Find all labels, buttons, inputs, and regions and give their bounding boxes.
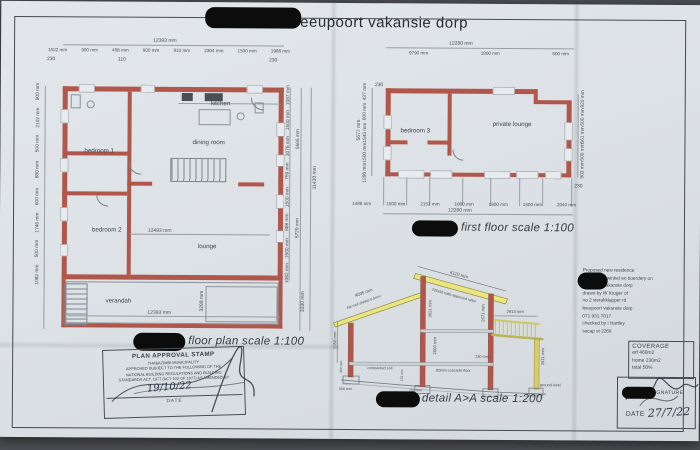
text-item: 1800 mm <box>455 202 474 207</box>
dim-left-height: 2958 mm <box>332 331 337 349</box>
scanned-plan-sheet: eeupoort vakansie dorp 12393 mm 1522 mm9… <box>0 1 700 441</box>
wall-segment <box>62 191 127 195</box>
room-label-private-lounge: private lounge <box>493 121 532 128</box>
wall-segment <box>447 94 451 156</box>
signature-scribble <box>612 352 700 413</box>
window <box>564 148 572 161</box>
section-caption: detail A>A scale 1:200 <box>422 392 543 405</box>
text-item: leeupoort vakansie dorp <box>582 304 674 312</box>
dim-verandah-side: 3330 mm <box>300 291 306 312</box>
wall-segment <box>238 182 264 186</box>
wall-segment <box>534 100 571 104</box>
room-label-bedroom2: bedroom 2 <box>92 226 122 233</box>
dim-deck-height: 2611 mm <box>540 348 545 366</box>
text-item: 759 mm <box>286 163 291 180</box>
text-item: 1500 mm <box>523 202 542 207</box>
window <box>383 146 391 160</box>
window <box>564 122 572 140</box>
text-item: 1500 mm <box>363 142 368 162</box>
wall-tick: 230 <box>375 82 383 88</box>
text-item: 1800 mm <box>481 51 500 56</box>
text-item: 500 mm <box>581 143 586 160</box>
window <box>247 85 263 93</box>
text-item: 600 mm <box>552 51 569 56</box>
text-item: 2304 mm <box>204 48 223 53</box>
redaction-blob <box>622 387 656 399</box>
dim-col-left: 900 mm2102 mm500 mm880 mm600 mm1746 mm50… <box>33 89 44 277</box>
dim-left-plinth: 300 mm <box>339 361 343 373</box>
redaction-blob <box>205 7 301 29</box>
deck-rail <box>493 320 539 324</box>
text-item: 5665 mm <box>296 129 301 149</box>
wall-tick: 110 <box>118 57 126 63</box>
text-item: 880 mm <box>36 161 41 178</box>
text-item: 500 mm <box>581 108 586 125</box>
text-item: sacap st 2268 <box>582 327 674 335</box>
dim-right-total: 11430 mm <box>312 166 318 189</box>
main-wall <box>488 294 494 390</box>
window <box>60 158 68 172</box>
text-item: 1087 mm <box>286 85 291 105</box>
dim-step: 230 mm <box>475 355 489 359</box>
text-item: 600 mm <box>363 103 368 120</box>
room-label-verandah: verandah <box>105 298 131 305</box>
text-item: 900 mm <box>143 48 160 53</box>
wall-segment <box>385 140 407 144</box>
first-floor-plan: 12280 mm 9790 mm1800 mm600 mm bedroom 3 … <box>1 1 700 5</box>
deck-post <box>534 339 539 389</box>
text-item: 1082 mm <box>35 265 40 285</box>
toilet-fixture <box>237 112 245 120</box>
text-item: 903 mm <box>581 161 586 178</box>
dim-room-height: 2600 mm <box>432 337 437 355</box>
text-item: 9790 mm <box>409 50 428 55</box>
room-label-bedroom1: bedroom 1 <box>84 147 114 154</box>
dim-total-top: 12280 mm <box>449 41 473 47</box>
window <box>430 170 452 178</box>
text-item: 900 mm <box>36 83 41 100</box>
dim-row-top: 9790 mm1800 mm600 mm <box>409 50 569 56</box>
dim-col-right-mid: 5665 mm5729 mm <box>293 95 304 273</box>
window <box>493 87 515 95</box>
redaction-blob <box>578 272 608 289</box>
text-item: 1522 mm <box>48 47 67 52</box>
text-item: 1543 mm <box>363 122 368 142</box>
text-item: 1900 mm <box>489 202 508 207</box>
signature-box: OWNER SIGNATURE DATE 27/7/22 <box>617 377 696 429</box>
text-item: 5729 mm <box>295 218 300 238</box>
dining-table <box>199 109 231 125</box>
first-floor-caption: first floor scale 1:100 <box>461 222 574 235</box>
text-item: 1500 mm <box>285 238 290 258</box>
text-item: 920 mm <box>581 90 586 107</box>
room-label-bedroom3: bedroom 3 <box>401 127 431 134</box>
text-item: 900 mm <box>81 47 98 52</box>
sheet-title: eeupoort vakansie dorp <box>300 14 468 32</box>
text-item: 2040 mm <box>557 202 576 207</box>
window <box>61 109 69 123</box>
wall-segment <box>278 281 282 329</box>
wall-segment <box>385 88 391 176</box>
text-item: 910 mm <box>174 48 191 53</box>
dim-col-right: 920 mm500 mm561 mm500 mm903 mm <box>578 96 588 172</box>
wall-tick: 230 <box>269 58 277 64</box>
redaction-blob <box>412 220 458 236</box>
staircase <box>170 158 226 182</box>
text-item: 1500 mm <box>286 187 291 207</box>
window <box>79 84 95 92</box>
text-item: 1500 mm <box>286 111 291 131</box>
text-item: 1500 mm <box>238 48 257 53</box>
dim-bottom-total: 12280 mm <box>448 208 472 214</box>
text-item: 600 mm <box>36 187 41 204</box>
basin-fixture <box>71 94 81 108</box>
text-item: 500 mm <box>35 240 40 257</box>
room-label-lounge: lounge <box>198 243 217 250</box>
window <box>60 207 68 221</box>
text-item: 1488 mm <box>352 201 371 206</box>
room-label-kitchen: kitchen <box>211 100 231 107</box>
window <box>60 244 68 256</box>
first-floor-slab <box>420 329 493 332</box>
text-item: 1082 mm <box>285 263 290 283</box>
window <box>384 115 392 129</box>
dim-wall-height: 3621 mm <box>427 300 432 318</box>
dim-total-top: 12393 mm <box>153 38 177 44</box>
text-item: 437 mm <box>363 83 368 100</box>
date-label: DATE <box>626 411 645 418</box>
text-item: 1500 mm <box>386 201 405 206</box>
text-item: 1296 mm <box>363 163 368 183</box>
window <box>141 85 155 93</box>
text-item: 888 mm <box>285 214 290 231</box>
dim-verandah-depth: 3298 mm <box>199 291 205 312</box>
room-label-dining: dining room <box>192 139 224 146</box>
text-item: 1988 mm <box>271 49 290 54</box>
dim-left-footing: 500 mm <box>339 387 352 391</box>
flat-roof-note: flat roof sheets 0.5mm <box>346 294 381 310</box>
dim-footing-depth: 375 mm <box>400 369 404 381</box>
dim-bottom-total: 12393 mm <box>147 310 171 316</box>
stove-icon <box>182 93 193 101</box>
text-item: 561 mm <box>581 126 586 143</box>
text-item: 500 mm <box>36 135 41 152</box>
dim-flat-roof: 4035 mm <box>354 287 373 298</box>
dim-deck-width: 2913 mm <box>506 309 524 314</box>
text-item: 2152 mm <box>420 201 439 206</box>
text-item: 488 mm <box>112 48 129 53</box>
text-item: 2102 mm <box>36 108 41 128</box>
window <box>545 171 561 179</box>
dim-deck-wall: 2671 mm <box>480 304 485 322</box>
text-item: 3078 mm <box>286 136 291 156</box>
dim-left-total: 5677 mm <box>356 120 362 141</box>
date-value-handwritten: 27/7/22 <box>648 405 691 420</box>
floor-note: 80mm concrete floor <box>436 369 471 373</box>
wall-tick: 230 <box>47 56 55 62</box>
floor-plan: 12393 mm 1522 mm900 mm488 mm900 mm910 mm… <box>1 1 700 5</box>
text-item: 1746 mm <box>35 212 40 232</box>
soil-note: compacted soil <box>367 366 393 370</box>
wall-segment <box>427 140 451 144</box>
wall-tick: 230 <box>574 183 582 189</box>
ground-level-label: ground level <box>540 383 561 387</box>
wall-segment <box>127 182 152 186</box>
window <box>484 171 510 179</box>
stamp-scribble <box>94 323 265 424</box>
toilet-fixture <box>87 100 95 108</box>
veranda-post <box>348 323 353 377</box>
redaction-blob <box>376 391 420 407</box>
window <box>398 170 424 178</box>
dim-lounge-width: 12493 mm <box>148 228 172 234</box>
